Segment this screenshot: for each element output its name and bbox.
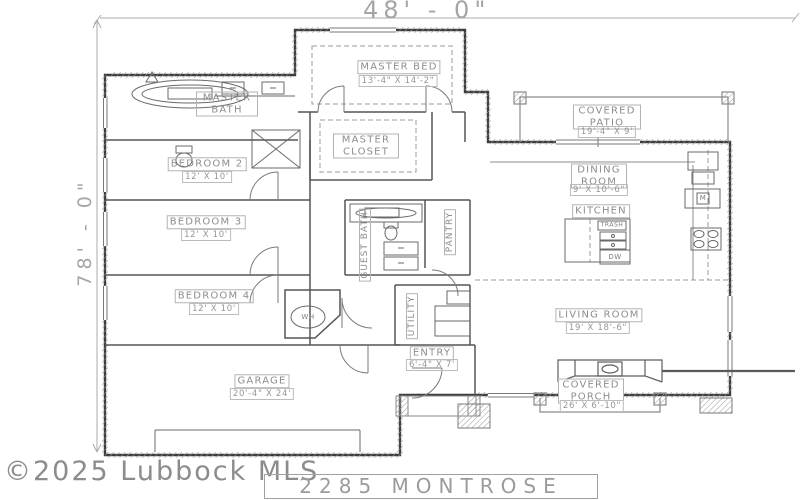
- room-dims-bedroom2: 12' X 10': [182, 171, 232, 183]
- dishwasher-label: DW: [608, 253, 621, 261]
- drawer: [600, 232, 626, 240]
- water-heater-label: WH: [301, 313, 314, 321]
- room-label-bedroom4: BEDROOM 4: [175, 289, 254, 303]
- room-dims-garage: 20'-4" X 24': [230, 388, 294, 400]
- room-dims-bedroom3: 12' X 10': [181, 229, 231, 241]
- utility-fixtures: [291, 291, 470, 336]
- ac-pad: [700, 398, 732, 413]
- room-label-master-closet: MASTER CLOSET: [333, 134, 399, 159]
- room-label-living: LIVING ROOM: [555, 308, 642, 322]
- room-label-pantry: PANTRY: [444, 209, 456, 255]
- room-label-garage: GARAGE: [234, 374, 289, 388]
- room-label-bedroom2: BEDROOM 2: [168, 157, 247, 171]
- drawer: [600, 241, 626, 249]
- master-bath-fixtures: [132, 72, 300, 168]
- room-label-guest-bath: GUEST BATH: [359, 208, 371, 281]
- room-label-bedroom3: BEDROOM 3: [167, 215, 246, 229]
- room-label-entry: ENTRY: [410, 346, 454, 360]
- counter-box: [692, 172, 714, 184]
- room-dims-covered-porch: 26' X 6'-10": [560, 400, 624, 412]
- room-label-master-bath: MASTER BATH: [196, 92, 258, 117]
- shelf: [447, 291, 470, 304]
- overall-height-dimension: 78' - 0": [74, 177, 96, 286]
- room-dims-master-bed: 13'-4" X 14'-2": [359, 75, 438, 87]
- garage-door-header: [155, 430, 360, 452]
- room-dims-bedroom4: 12' X 10': [189, 303, 239, 315]
- dryer-icon: [435, 321, 470, 336]
- room-dims-entry: 6'-4" X 7': [406, 359, 458, 371]
- washer-icon: [435, 306, 470, 321]
- overall-width-dimension: 48' - 0": [363, 0, 490, 24]
- room-dims-living: 19' X 18'-6": [566, 322, 630, 334]
- room-label-master-bed: MASTER BED: [357, 60, 440, 74]
- floorplan-canvas: MASTER BED 13'-4" X 14'-2" MASTER BATH M…: [0, 0, 800, 500]
- trash-label: TRASH: [601, 222, 624, 229]
- room-label-utility: UTILITY: [406, 293, 418, 339]
- plan-title: 2285 MONTROSE: [264, 474, 598, 499]
- toilet-tank: [384, 222, 398, 228]
- room-label-kitchen: KITCHEN: [572, 204, 630, 218]
- microwave-label: M: [700, 194, 707, 202]
- room-dims-dining: 9' X 10'-6": [570, 184, 628, 196]
- toilet-tank: [176, 146, 192, 153]
- ac-pad: [458, 404, 490, 428]
- room-dims-covered-patio: 19'-4" X 9': [578, 126, 636, 138]
